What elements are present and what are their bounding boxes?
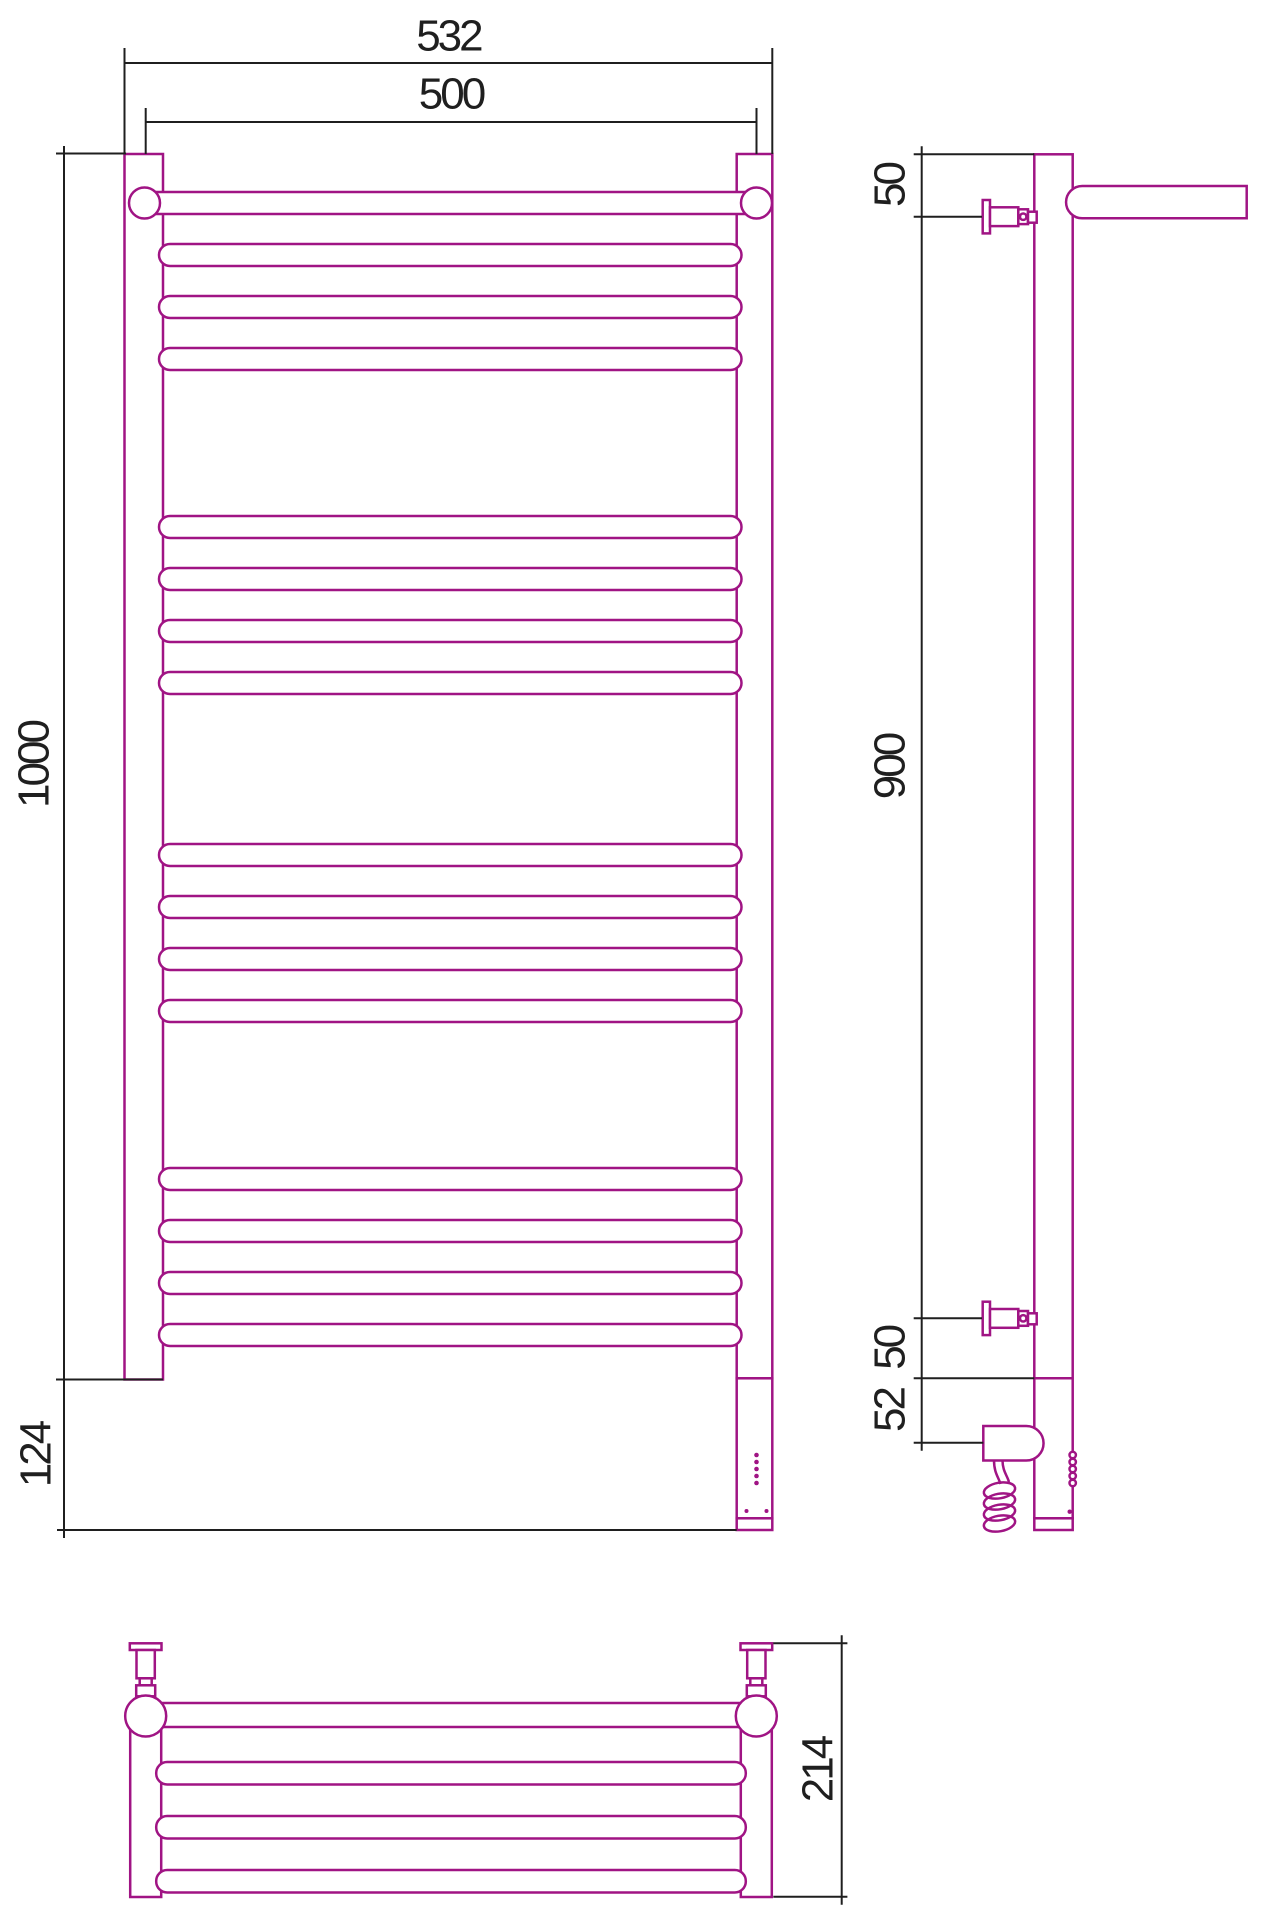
technical-drawing: 532 500 1000 124 — [0, 0, 1267, 1920]
wall-bracket-left — [130, 1643, 162, 1696]
shelf-tube — [156, 1870, 746, 1893]
rung — [159, 844, 742, 866]
front-view — [125, 154, 773, 1530]
dim-bottom-bracket-offset-label: 50 — [866, 1325, 915, 1369]
rung — [159, 244, 742, 266]
side-stand-base — [1034, 1518, 1072, 1530]
electric-box-base — [737, 1518, 773, 1530]
rung — [159, 1220, 742, 1242]
dim-heater-offset-label: 52 — [866, 1388, 915, 1432]
side-stand — [1034, 154, 1072, 1518]
mounting-ball-right — [741, 188, 772, 219]
rung — [159, 1000, 742, 1022]
rung — [159, 516, 742, 538]
bracket-screw — [1020, 214, 1026, 220]
side-view — [983, 154, 1247, 1534]
dim-overall-width-label: 532 — [416, 12, 482, 61]
power-cartridge — [983, 1426, 1043, 1461]
wall-bracket-bottom — [983, 1302, 1037, 1335]
bottom-view — [125, 1643, 777, 1897]
rung — [159, 568, 742, 590]
dim-bracket-span-label: 900 — [866, 733, 915, 799]
shelf-arm-left — [130, 1729, 161, 1897]
rung — [159, 348, 742, 370]
screw-dot — [765, 1509, 769, 1513]
rung — [159, 620, 742, 642]
shelf-tube — [156, 1816, 746, 1839]
wall-bracket-right — [741, 1643, 773, 1696]
electric-box-edge-bumps — [1070, 1452, 1076, 1486]
left-stand — [125, 154, 164, 1380]
shelf-tube — [156, 1762, 746, 1785]
rung — [159, 896, 742, 918]
rung — [159, 296, 742, 318]
screw-dot — [745, 1509, 749, 1513]
dim-center-width-label: 500 — [419, 70, 485, 119]
spiral-cable — [983, 1480, 1017, 1534]
dim-shelf-depth-label: 214 — [794, 1735, 843, 1802]
dim-top-bracket-offset-label: 50 — [866, 163, 915, 207]
top-rung — [155, 192, 752, 214]
electric-box — [737, 1378, 773, 1518]
rung — [159, 672, 742, 694]
bracket-screw — [1020, 1315, 1026, 1321]
rung — [159, 1168, 742, 1190]
rung — [159, 1272, 742, 1294]
top-rung-bottom-view — [150, 1703, 752, 1727]
cable-neck — [1003, 1460, 1010, 1482]
rung — [159, 1324, 742, 1346]
rung — [159, 948, 742, 970]
bottom-view-dimensions: 214 — [773, 1635, 847, 1904]
dim-height-label: 1000 — [10, 721, 59, 808]
shelf-arm-right — [741, 1729, 772, 1897]
cable-neck — [994, 1460, 1001, 1484]
shelf-arm — [1066, 186, 1247, 218]
side-view-dimensions: 50 900 50 52 — [866, 146, 1035, 1450]
dim-bottom-section-label: 124 — [12, 1420, 61, 1487]
mounting-ball-left — [129, 188, 160, 219]
wall-bracket-top — [983, 200, 1037, 233]
right-stand — [737, 154, 773, 1378]
screw-dot — [1068, 1510, 1072, 1514]
mounting-ball-right — [736, 1696, 777, 1737]
drawing-canvas: 532 500 1000 124 — [0, 0, 1267, 1920]
mounting-ball-left — [125, 1696, 166, 1737]
